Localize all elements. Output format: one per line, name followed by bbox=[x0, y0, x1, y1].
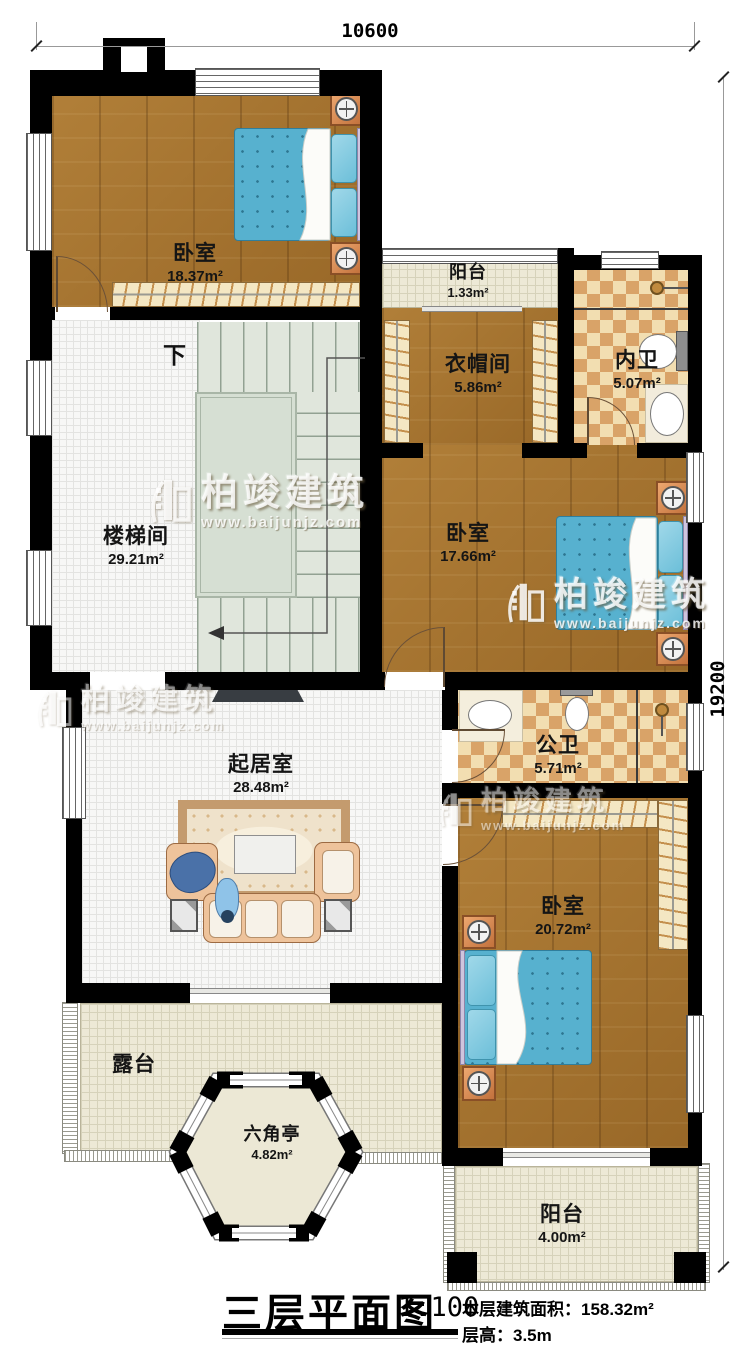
room-name: 阳台 bbox=[538, 1198, 586, 1228]
room-name: 六角亭 bbox=[244, 1120, 301, 1146]
window bbox=[26, 360, 52, 436]
room-name: 露台 bbox=[112, 1048, 156, 1078]
cushion bbox=[322, 850, 354, 894]
window bbox=[26, 133, 52, 251]
stair-lower-flight bbox=[197, 598, 360, 672]
dimension-line-top bbox=[36, 46, 695, 47]
side-table bbox=[324, 899, 352, 932]
room-area: 29.21m² bbox=[103, 551, 169, 568]
room-name: 楼梯间 bbox=[103, 520, 169, 550]
sink bbox=[468, 700, 512, 730]
nightstand bbox=[330, 92, 363, 126]
wall bbox=[66, 690, 82, 728]
pillar bbox=[447, 1252, 477, 1283]
room-area: 18.37m² bbox=[167, 268, 223, 285]
dimension-top-value: 10600 bbox=[325, 20, 415, 42]
plan-height-value: 3.5m bbox=[513, 1326, 552, 1345]
lamp-icon bbox=[467, 1071, 491, 1096]
title-underline bbox=[222, 1329, 458, 1335]
nightstand bbox=[462, 1066, 496, 1101]
nightstand bbox=[462, 915, 496, 949]
room-area: 4.82m² bbox=[244, 1147, 301, 1162]
window bbox=[686, 452, 704, 523]
room-label-living-room: 起居室 28.48m² bbox=[228, 748, 294, 796]
pillow bbox=[331, 188, 357, 237]
pillow bbox=[467, 1009, 496, 1060]
nightstand bbox=[656, 632, 690, 666]
wall bbox=[360, 70, 382, 690]
pillow bbox=[467, 955, 496, 1006]
room-name: 起居室 bbox=[228, 748, 294, 778]
wall bbox=[330, 983, 442, 1003]
stair-upper-flight bbox=[197, 322, 360, 392]
pillow bbox=[658, 521, 683, 573]
room-name: 公卫 bbox=[534, 729, 582, 759]
room-label-balcony-bottom: 阳台 4.00m² bbox=[538, 1198, 586, 1246]
balcony-door-threshold bbox=[503, 1152, 650, 1158]
pillar bbox=[674, 1252, 706, 1283]
chimney-flue bbox=[121, 47, 147, 72]
wall bbox=[382, 443, 423, 458]
coffee-table bbox=[234, 835, 296, 874]
wall bbox=[30, 307, 55, 320]
room-name: 阳台 bbox=[447, 258, 488, 284]
stair-right-flight bbox=[297, 392, 360, 598]
title-underline-thin bbox=[222, 1338, 458, 1339]
wall bbox=[165, 672, 385, 690]
wall bbox=[442, 783, 702, 798]
pillow bbox=[331, 134, 357, 183]
wall bbox=[558, 248, 574, 458]
wardrobe bbox=[532, 320, 558, 443]
window bbox=[686, 703, 704, 771]
stair-hall-floor bbox=[52, 320, 200, 672]
room-area: 28.48m² bbox=[228, 779, 294, 796]
window bbox=[26, 550, 52, 626]
wall bbox=[522, 443, 558, 458]
sink bbox=[650, 392, 684, 436]
terrace-parapet bbox=[62, 1002, 78, 1154]
terrace-parapet bbox=[64, 1150, 178, 1162]
window bbox=[601, 251, 659, 269]
wall bbox=[558, 443, 587, 458]
balcony-railing bbox=[447, 1282, 706, 1291]
bed bbox=[556, 516, 658, 630]
room-area: 20.72m² bbox=[535, 921, 591, 938]
wall bbox=[66, 819, 82, 989]
room-area: 5.71m² bbox=[534, 760, 582, 777]
room-name: 衣帽间 bbox=[445, 348, 511, 378]
wall bbox=[66, 983, 190, 1003]
lamp-icon bbox=[661, 486, 685, 510]
wall bbox=[442, 866, 458, 1150]
terrace-parapet bbox=[356, 1152, 442, 1164]
wardrobe bbox=[658, 800, 688, 950]
bed-headboard bbox=[460, 950, 465, 1065]
stair-down-label: 下 bbox=[163, 336, 186, 370]
room-area: 17.66m² bbox=[440, 548, 496, 565]
wall bbox=[650, 1148, 702, 1166]
shower-divider bbox=[574, 308, 688, 310]
window bbox=[686, 1015, 704, 1113]
room-name: 内卫 bbox=[613, 344, 661, 374]
dimension-right-value: 19200 bbox=[707, 644, 729, 734]
lamp-icon bbox=[335, 97, 358, 121]
plan-area-note: 本层建筑面积：158.32m² bbox=[462, 1295, 654, 1320]
wall bbox=[30, 672, 90, 690]
room-label-bedroom-se: 卧室 20.72m² bbox=[535, 890, 591, 938]
tv bbox=[212, 690, 304, 702]
room-area: 5.86m² bbox=[445, 379, 511, 396]
plan-height-label: 层高： bbox=[462, 1326, 513, 1345]
room-label-balcony-top: 阳台 1.33m² bbox=[447, 258, 488, 300]
room-name: 卧室 bbox=[440, 517, 496, 547]
room-area: 4.00m² bbox=[538, 1229, 586, 1246]
room-label-terrace: 露台 bbox=[112, 1048, 156, 1078]
shower-divider bbox=[636, 690, 638, 783]
window bbox=[62, 727, 86, 819]
cushion bbox=[281, 900, 314, 938]
shower-head-icon bbox=[650, 281, 664, 295]
sliding-door-threshold bbox=[422, 306, 522, 312]
wardrobe bbox=[112, 282, 360, 307]
plan-height-note: 层高：3.5m bbox=[462, 1321, 552, 1346]
nightstand bbox=[330, 242, 363, 275]
room-area: 1.33m² bbox=[447, 285, 488, 300]
bed bbox=[234, 128, 331, 241]
side-table bbox=[170, 899, 198, 932]
person-head bbox=[221, 910, 234, 923]
room-label-ensuite: 内卫 5.07m² bbox=[613, 344, 661, 392]
plan-area-label: 本层建筑面积： bbox=[462, 1300, 581, 1319]
terrace-door-threshold bbox=[190, 988, 330, 994]
wardrobe bbox=[384, 320, 410, 443]
wall bbox=[442, 1148, 503, 1166]
pillow bbox=[658, 575, 683, 627]
room-label-public-bath: 公卫 5.71m² bbox=[534, 729, 582, 777]
wall bbox=[110, 307, 360, 320]
shower-arm bbox=[663, 287, 688, 289]
shower-arm bbox=[661, 716, 663, 736]
wall bbox=[445, 672, 702, 690]
lamp-icon bbox=[467, 920, 491, 944]
room-label-bedroom-nw: 卧室 18.37m² bbox=[167, 237, 223, 285]
room-name: 卧室 bbox=[167, 237, 223, 267]
cushion bbox=[245, 900, 278, 938]
toilet bbox=[565, 697, 589, 731]
plan-area-value: 158.32m² bbox=[581, 1300, 654, 1319]
room-name: 卧室 bbox=[535, 890, 591, 920]
room-area: 5.07m² bbox=[613, 375, 661, 392]
room-label-cloakroom: 衣帽间 5.86m² bbox=[445, 348, 511, 396]
shower-head-icon bbox=[655, 703, 669, 717]
wall bbox=[442, 690, 458, 730]
lamp-icon bbox=[661, 637, 685, 661]
stairwell-opening bbox=[195, 392, 297, 598]
wardrobe bbox=[502, 800, 658, 828]
lamp-icon bbox=[335, 247, 358, 270]
floor-plan: 卧室 18.37m² 阳台 1.33m² 衣帽间 5.86m² 内卫 5.07m… bbox=[0, 0, 750, 1351]
room-label-bedroom-mid: 卧室 17.66m² bbox=[440, 517, 496, 565]
room-label-pavilion: 六角亭 4.82m² bbox=[244, 1120, 301, 1162]
toilet-tank bbox=[676, 331, 688, 371]
window bbox=[195, 68, 320, 96]
room-label-stair-hall: 楼梯间 29.21m² bbox=[103, 520, 169, 568]
nightstand bbox=[656, 481, 690, 515]
